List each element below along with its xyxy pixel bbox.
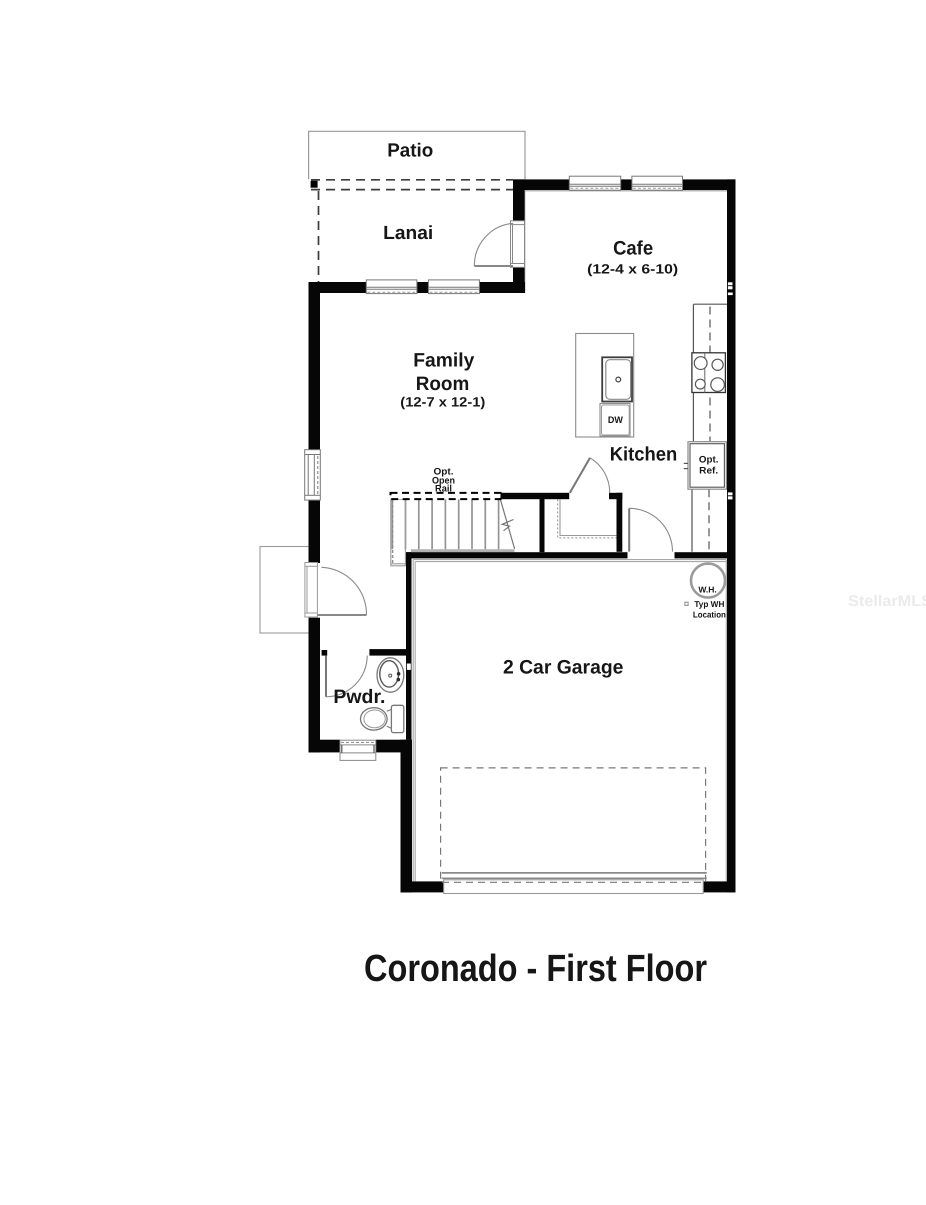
- svg-text:Patio: Patio: [387, 141, 433, 162]
- svg-text:Room: Room: [416, 373, 470, 395]
- svg-text:Rail: Rail: [435, 483, 452, 494]
- svg-text:Cafe: Cafe: [613, 238, 653, 260]
- svg-text:Family: Family: [413, 350, 474, 372]
- svg-text:(12-4 x 6-10): (12-4 x 6-10): [587, 262, 678, 277]
- svg-text:(12-7 x 12-1): (12-7 x 12-1): [400, 394, 485, 409]
- svg-text:Location: Location: [693, 609, 726, 619]
- svg-text:DW: DW: [608, 415, 623, 426]
- svg-text:StellarMLS: StellarMLS: [848, 593, 926, 610]
- svg-text:Coronado - First Floor: Coronado - First Floor: [364, 948, 707, 990]
- svg-text:Ref.: Ref.: [699, 465, 718, 476]
- svg-text:Lanai: Lanai: [383, 223, 433, 244]
- svg-text:Pwdr.: Pwdr.: [333, 686, 385, 708]
- svg-text:W.H.: W.H.: [698, 585, 716, 595]
- svg-text:2 Car Garage: 2 Car Garage: [503, 657, 624, 679]
- svg-text:Opt.: Opt.: [699, 455, 719, 466]
- svg-text:Typ WH: Typ WH: [694, 599, 724, 609]
- svg-text:Kitchen: Kitchen: [610, 443, 678, 465]
